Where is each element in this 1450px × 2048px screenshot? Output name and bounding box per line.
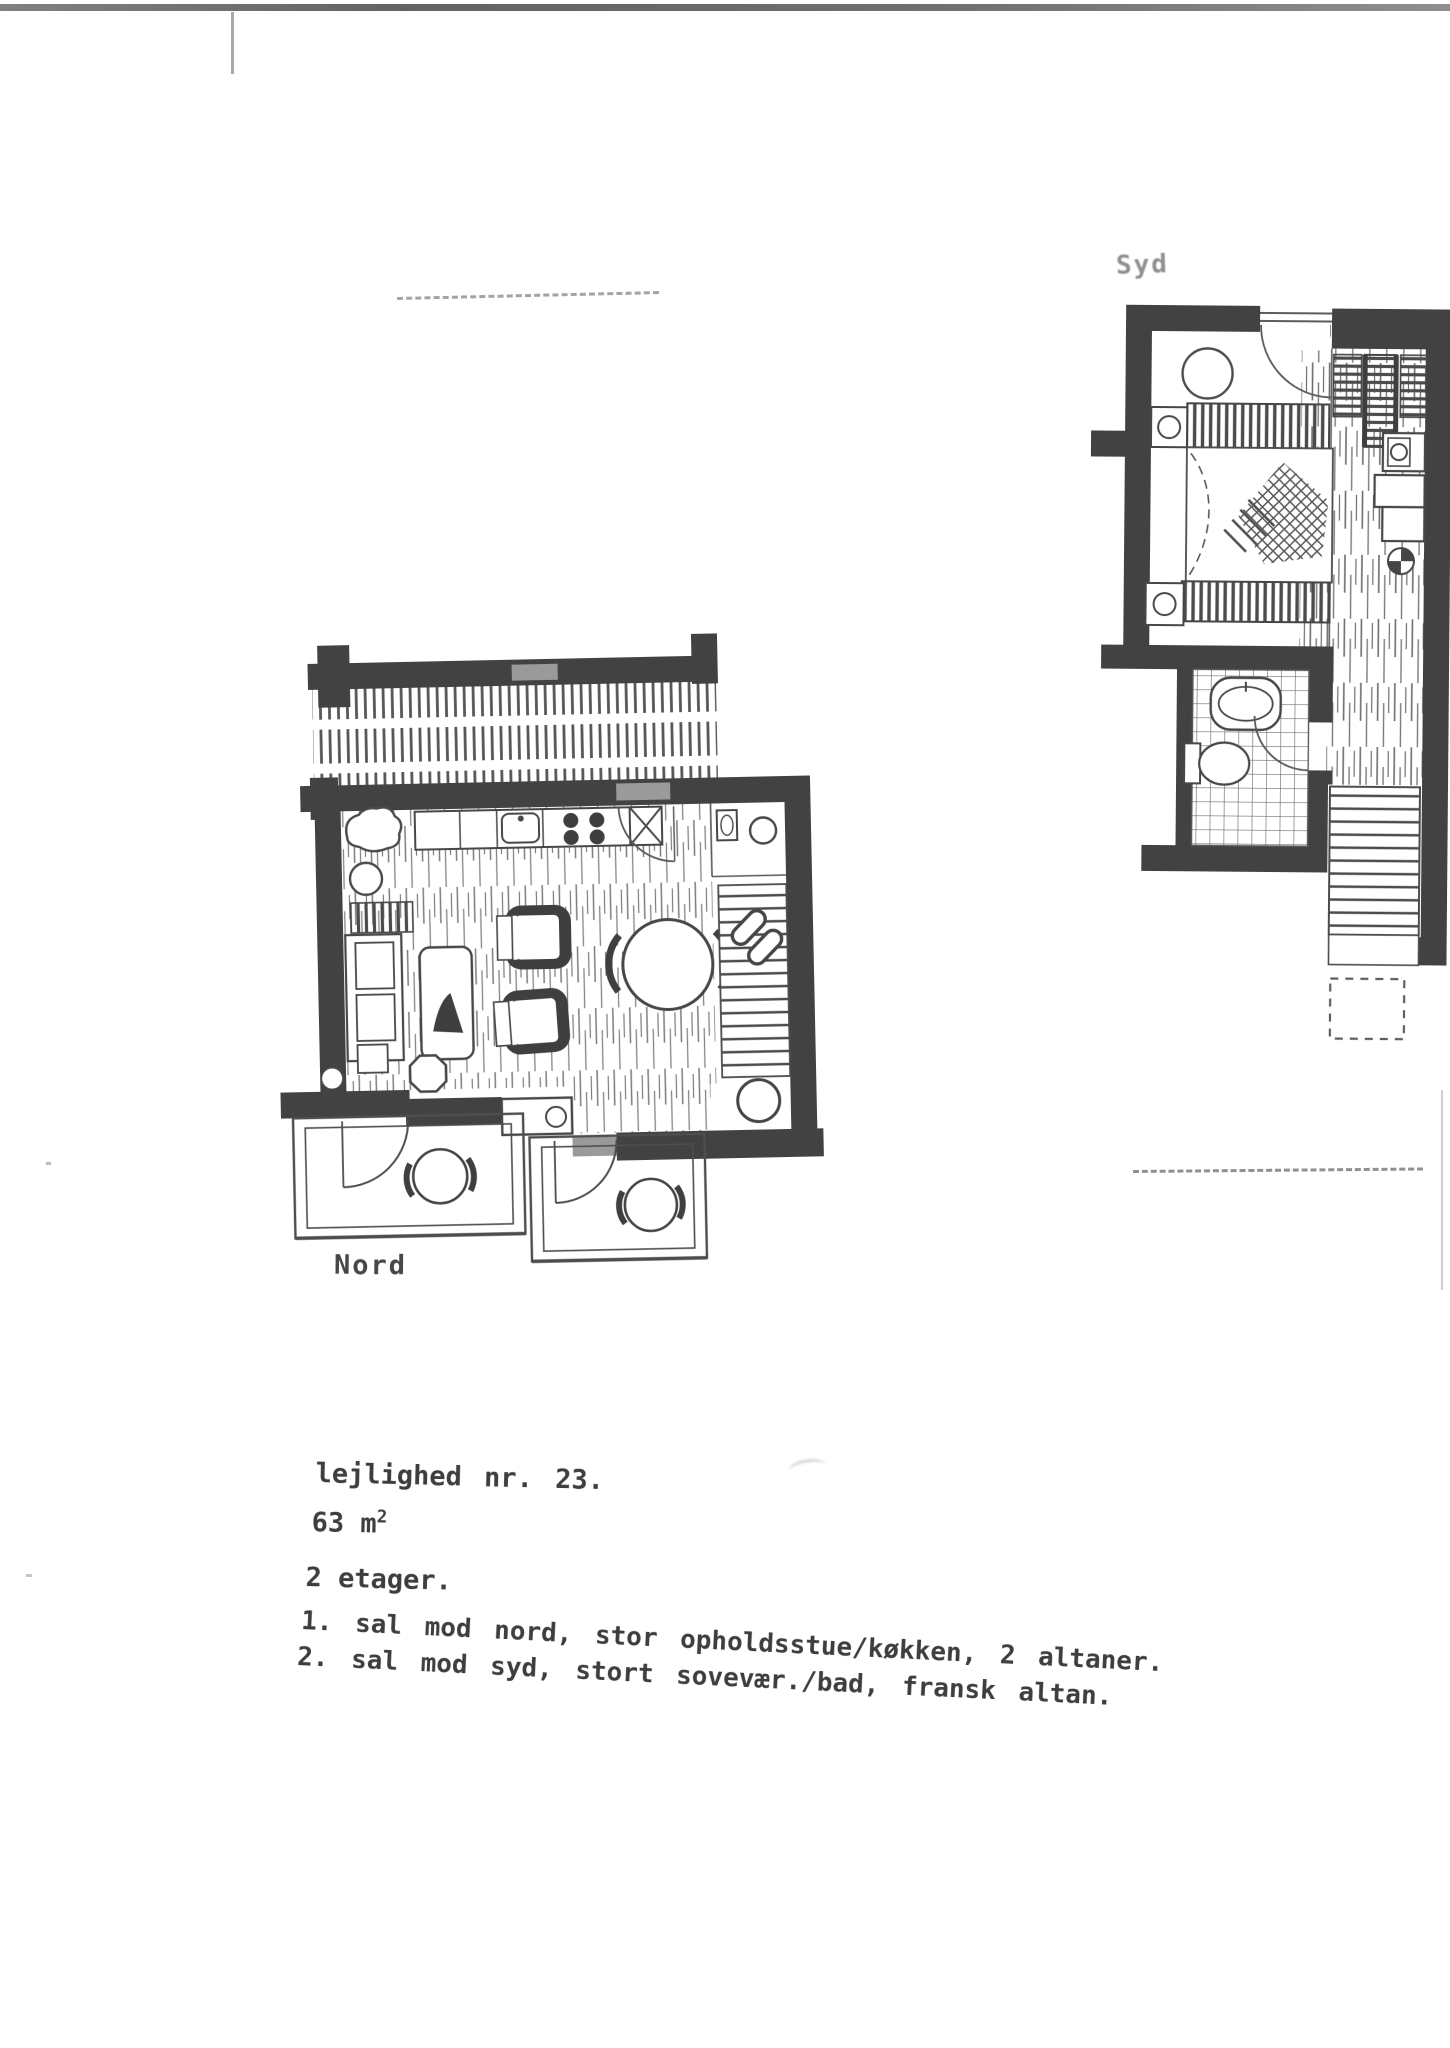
caption-area-value: 63 m bbox=[311, 1507, 377, 1539]
nord-floor-plan-drawing bbox=[261, 629, 931, 1315]
syd-toilet bbox=[1184, 742, 1249, 785]
syd-cabinet bbox=[1383, 433, 1425, 471]
syd-stairs bbox=[1326, 785, 1422, 966]
ink-smudge bbox=[787, 1457, 827, 1479]
scan-fold-tick bbox=[231, 12, 234, 74]
scan-edge-top bbox=[0, 4, 1450, 11]
syd-stool bbox=[1182, 348, 1232, 398]
syd-footboard bbox=[1181, 581, 1329, 622]
nord-floor-plan bbox=[261, 629, 931, 1315]
nord-small-chair bbox=[321, 1067, 343, 1089]
caption-area-sup: 2 bbox=[377, 1507, 388, 1527]
caption-apartment-number: lejlighed nr. 23. bbox=[315, 1458, 604, 1496]
syd-french-balcony bbox=[1330, 979, 1405, 1040]
nord-desk bbox=[502, 1098, 573, 1135]
dashed-section-line-bottom bbox=[1133, 1167, 1423, 1173]
caption-area: 63 m2 bbox=[311, 1506, 387, 1540]
nord-balcony-left-table bbox=[406, 1149, 475, 1204]
nord-stair-chair bbox=[737, 1079, 780, 1122]
nord-balcony-left-door-arc bbox=[342, 1120, 409, 1187]
nord-deck-stripes bbox=[312, 681, 718, 785]
syd-floor-plan-drawing bbox=[1082, 296, 1450, 1047]
scan-edge-right bbox=[1441, 1090, 1443, 1290]
syd-headboard bbox=[1187, 403, 1329, 448]
nord-balcony-right-table bbox=[618, 1178, 683, 1231]
syd-window-lines bbox=[1260, 313, 1332, 322]
nord-radiator bbox=[351, 902, 414, 933]
scan-speck bbox=[26, 1574, 32, 1577]
dashed-section-line-top bbox=[397, 291, 659, 300]
nord-appliance-x bbox=[630, 807, 663, 846]
nord-armchair-1 bbox=[497, 905, 572, 971]
scan-speck bbox=[46, 1162, 51, 1165]
nord-coffee-table bbox=[419, 947, 473, 1060]
syd-bathroom bbox=[1183, 669, 1309, 846]
nord-wc bbox=[710, 802, 786, 877]
caption-floors: 2 etager. bbox=[305, 1562, 452, 1597]
nord-sofa bbox=[345, 934, 404, 1073]
nord-wc-toilet bbox=[750, 817, 777, 844]
nord-balcony-left bbox=[293, 1114, 525, 1239]
nord-chair-octagon bbox=[410, 1055, 447, 1092]
nord-plan-label: Nord bbox=[334, 1250, 407, 1282]
syd-bath-sink bbox=[1210, 677, 1280, 730]
syd-desk bbox=[1374, 475, 1425, 541]
scanned-page: Syd bbox=[0, 0, 1450, 2048]
syd-floor-plan bbox=[1082, 296, 1450, 1047]
nord-stairs bbox=[718, 884, 790, 1077]
syd-fan-symbol bbox=[1388, 548, 1414, 574]
syd-plan-label: Syd bbox=[1115, 249, 1169, 281]
